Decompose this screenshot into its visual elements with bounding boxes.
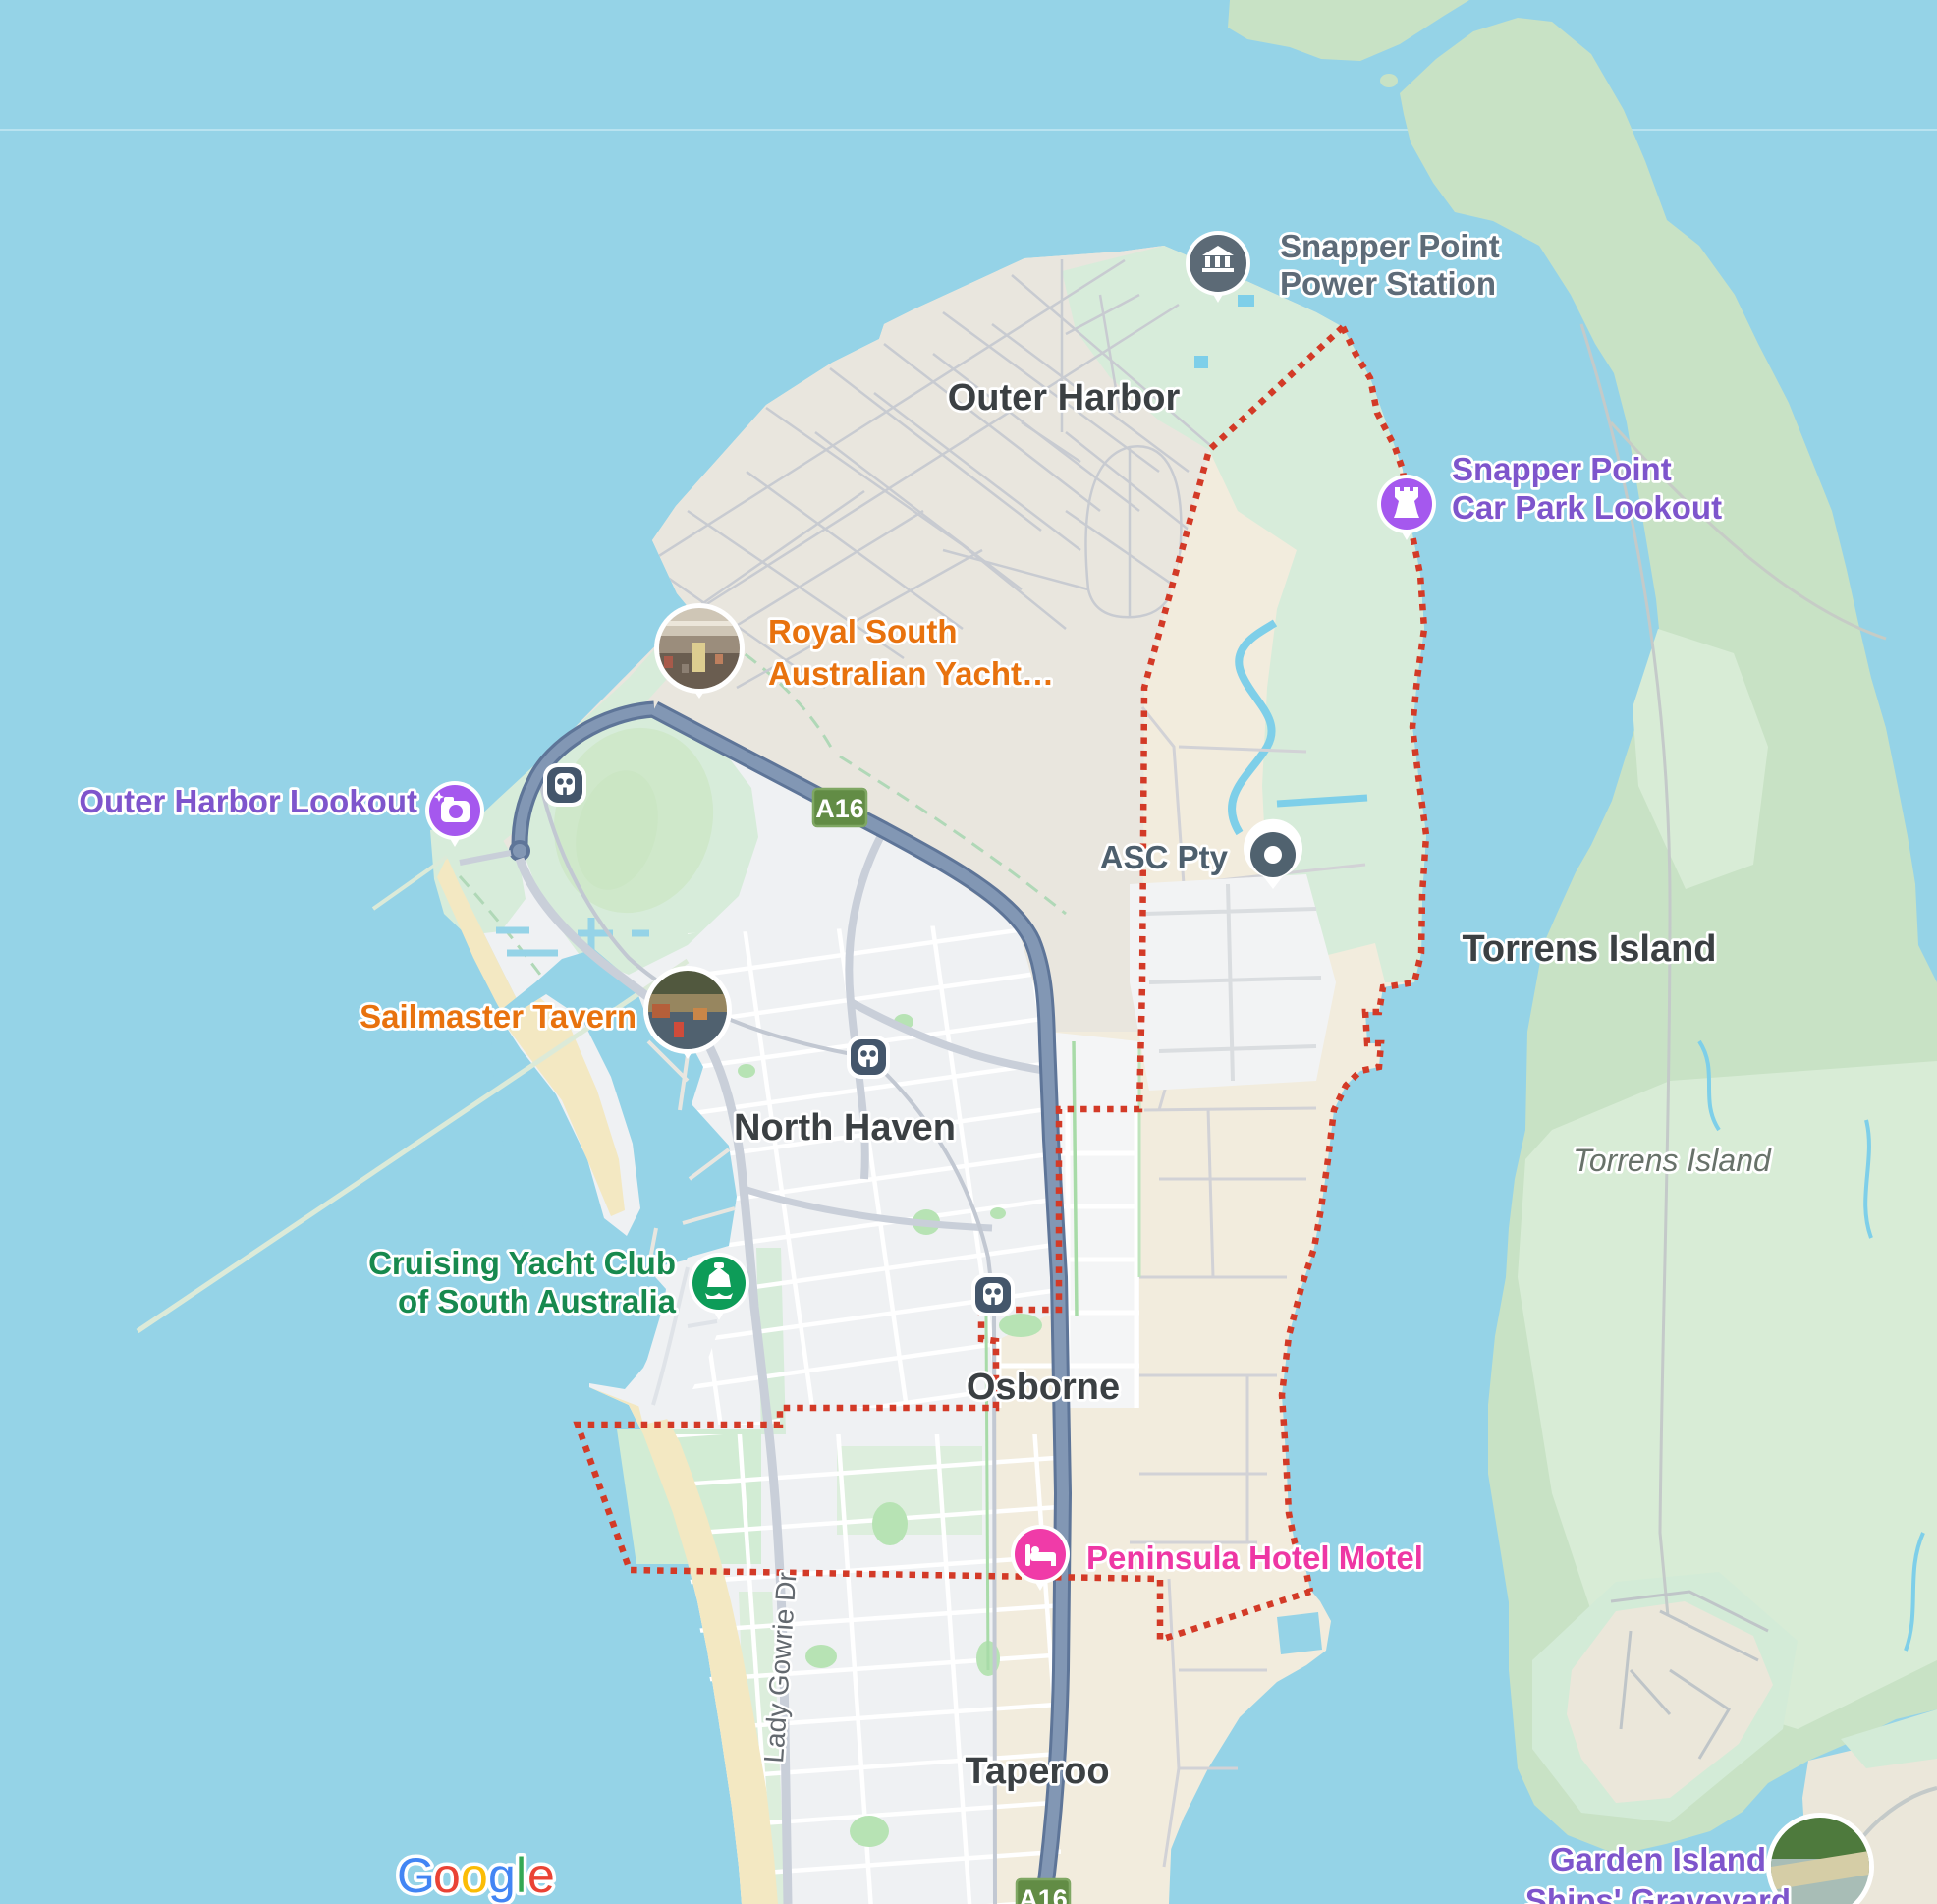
svg-text:Royal South: Royal South bbox=[768, 613, 958, 649]
svg-text:g: g bbox=[488, 1848, 516, 1903]
svg-text:Car Park Lookout: Car Park Lookout bbox=[1452, 489, 1722, 526]
svg-text:Osborne: Osborne bbox=[967, 1367, 1120, 1408]
svg-text:Taperoo: Taperoo bbox=[965, 1751, 1109, 1792]
svg-text:Australian Yacht…: Australian Yacht… bbox=[768, 655, 1054, 692]
svg-text:Peninsula Hotel Motel: Peninsula Hotel Motel bbox=[1086, 1540, 1423, 1576]
svg-text:Ships' Graveyard: Ships' Graveyard bbox=[1525, 1882, 1791, 1904]
svg-text:Outer Harbor Lookout: Outer Harbor Lookout bbox=[79, 783, 417, 819]
svg-text:A16: A16 bbox=[815, 794, 864, 823]
svg-text:o: o bbox=[433, 1848, 461, 1903]
svg-text:Torrens Island: Torrens Island bbox=[1462, 928, 1716, 970]
svg-text:ASC Pty: ASC Pty bbox=[1100, 839, 1229, 875]
svg-text:Snapper Point: Snapper Point bbox=[1280, 228, 1500, 264]
svg-text:e: e bbox=[527, 1848, 555, 1903]
svg-text:Garden Island: Garden Island bbox=[1550, 1841, 1766, 1877]
svg-text:of South Australia: of South Australia bbox=[398, 1283, 677, 1319]
svg-text:A16: A16 bbox=[1019, 1884, 1068, 1904]
svg-text:G: G bbox=[397, 1848, 435, 1903]
svg-text:Power Station: Power Station bbox=[1280, 265, 1496, 302]
svg-text:Cruising Yacht Club: Cruising Yacht Club bbox=[368, 1245, 676, 1281]
svg-text:l: l bbox=[516, 1848, 526, 1903]
svg-text:Sailmaster Tavern: Sailmaster Tavern bbox=[360, 998, 636, 1035]
svg-text:o: o bbox=[461, 1848, 488, 1903]
svg-text:Snapper Point: Snapper Point bbox=[1452, 451, 1672, 487]
svg-text:North Haven: North Haven bbox=[734, 1107, 956, 1148]
svg-text:Torrens Island: Torrens Island bbox=[1573, 1143, 1772, 1178]
svg-text:Outer Harbor: Outer Harbor bbox=[948, 377, 1181, 419]
